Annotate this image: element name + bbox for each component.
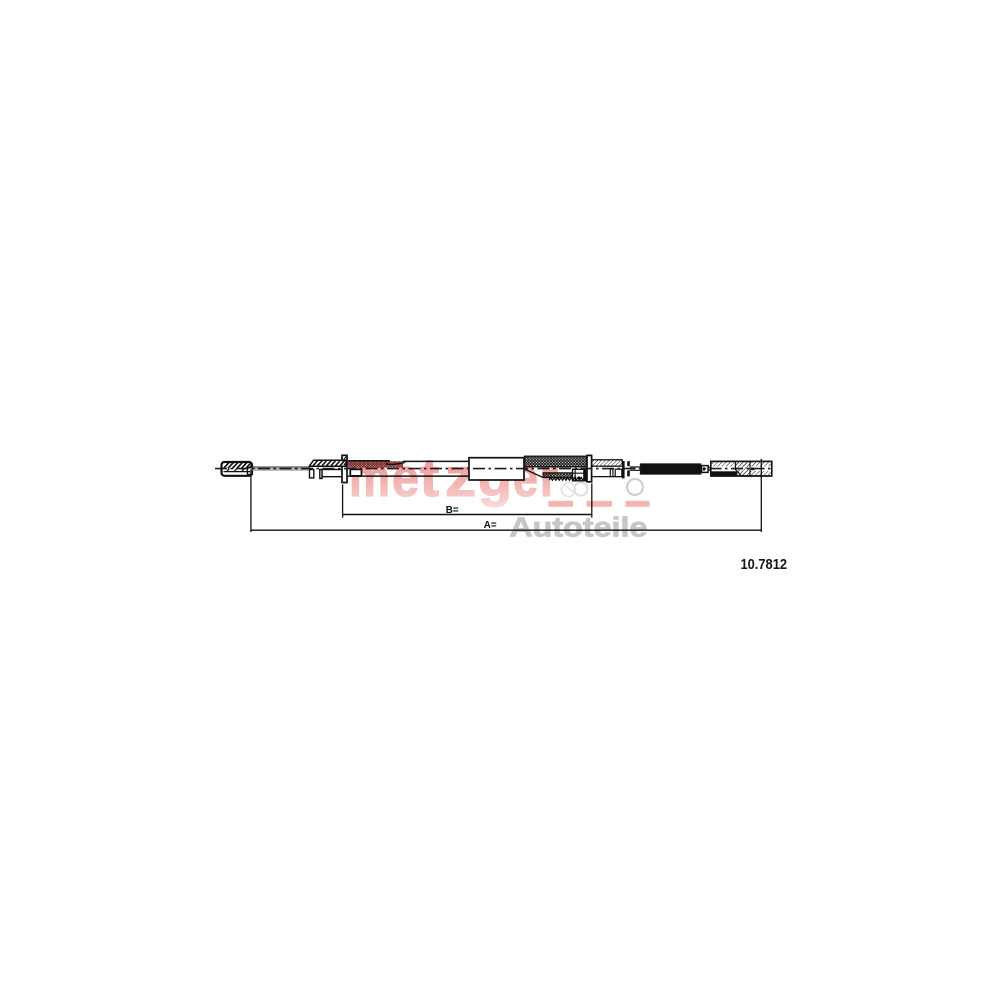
- svg-text:m: m: [349, 448, 390, 508]
- svg-text:t: t: [420, 448, 439, 508]
- svg-text:A=: A=: [484, 520, 497, 531]
- svg-text:10.7812: 10.7812: [741, 557, 788, 573]
- svg-text:B=: B=: [446, 505, 459, 516]
- svg-text:Autoteile: Autoteile: [509, 512, 647, 543]
- svg-text:e: e: [392, 448, 419, 508]
